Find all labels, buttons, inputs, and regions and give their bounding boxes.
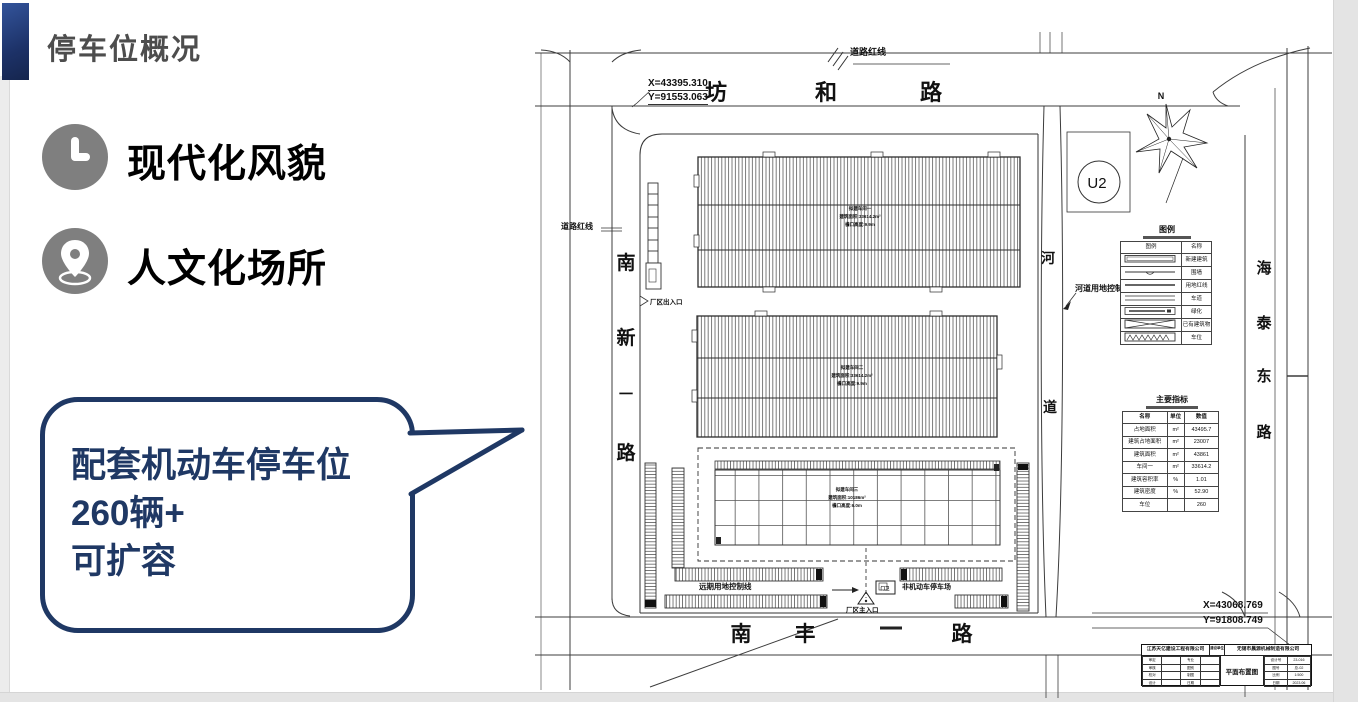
indicator-value: 23007 — [1184, 436, 1218, 449]
building-1-label: 檐口高度:9.9m — [845, 221, 875, 228]
legend-symbol-new-building — [1121, 254, 1182, 267]
coordinate-y: Y=91553.063 — [648, 91, 708, 105]
callout-tail — [396, 420, 536, 506]
road-top-char: 和 — [815, 80, 837, 105]
tb-cell — [1162, 672, 1181, 680]
building-1-label: 拟建车间一 — [849, 205, 872, 212]
building-3-top-strip — [715, 461, 1000, 469]
tb-cell — [1162, 679, 1181, 687]
indicator-unit: m² — [1167, 449, 1184, 462]
indicators-underline — [1146, 406, 1198, 409]
road-right-char: 海 — [1256, 259, 1271, 277]
indicator-unit: % — [1167, 486, 1184, 499]
road-redline-label-top: 道路红线 — [850, 45, 886, 58]
indicator-value: 260 — [1184, 499, 1218, 512]
indicator-value: 52.90 — [1184, 486, 1218, 499]
indicator-name: 车位 — [1123, 499, 1168, 512]
tb-cell: 校对 — [1143, 672, 1162, 680]
drawing-title-block: 江苏天亿建设工程有限公司 建设单位 无锡市晨源机械制造有限公司 审定专业 审核图… — [1141, 644, 1312, 686]
callout-line-3: 可扩容 — [71, 538, 410, 586]
future-control-label: 远期用地控制线 — [699, 581, 752, 592]
tb-cell: 比例 — [1264, 672, 1287, 680]
indicator-header: 名称 — [1123, 411, 1168, 424]
coordinate-y: Y=91808.749 — [1203, 613, 1263, 628]
legend-symbol-redline — [1121, 280, 1182, 293]
design-company: 江苏天亿建设工程有限公司 — [1142, 645, 1210, 655]
legend-symbol-parking — [1121, 332, 1182, 345]
u2-marker — [1067, 132, 1130, 212]
slide: 坊 和 路 南 新 一 路 南 丰 路 海 泰 东 路 河 道 N U2 门卫 … — [0, 0, 1358, 702]
indicator-name: 车间一 — [1123, 461, 1168, 474]
indicators-table: 主要指标 名称 单位 数值 占地面积m²43495.7 建筑占地面积m²2300… — [1122, 394, 1222, 512]
indicator-unit — [1167, 499, 1184, 512]
indicator-value: 43861 — [1184, 449, 1218, 462]
road-right-char: 路 — [1256, 423, 1272, 441]
side-entrance-label: 厂区出入口 — [650, 296, 683, 306]
tb-cell — [1200, 657, 1219, 665]
legend: 图例 图例 名称 新建建筑 围墙 用地红线 车道 绿化 已有建筑物 车位 — [1120, 224, 1214, 345]
coordinate-label-bottom: X=43068.769 Y=91808.749 — [1203, 598, 1263, 628]
indicator-unit: % — [1167, 474, 1184, 487]
road-bottom-char: 南 — [731, 622, 752, 646]
building-2-label: 拟建车间二 — [841, 364, 864, 371]
callout-line-1: 配套机动车停车位 — [71, 442, 410, 490]
road-left-char: 南 — [616, 252, 635, 274]
tb-cell: 总-02 — [1287, 664, 1310, 672]
road-left-char: 路 — [616, 441, 636, 464]
building-2-label: 檐口高度:9.9m — [837, 380, 867, 387]
indicator-header: 数值 — [1184, 411, 1218, 424]
legend-row-label: 围墙 — [1182, 267, 1212, 280]
river-char: 道 — [1043, 399, 1057, 415]
legend-row-label: 车位 — [1182, 332, 1212, 345]
building-2-label: 建筑面积:33614.2m² — [830, 372, 873, 379]
legend-row-label: 绿化 — [1182, 306, 1212, 319]
drawing-title: 平面布置图 — [1220, 656, 1264, 686]
north-label: N — [1158, 91, 1165, 101]
tb-cell: 制图 — [1181, 672, 1200, 680]
tb-cell: 日期 — [1181, 679, 1200, 687]
tb-cell: 设计号 — [1264, 657, 1287, 665]
indicator-name: 建筑密度 — [1123, 486, 1168, 499]
road-bottom-char: 路 — [952, 622, 974, 646]
tb-cell: 专业 — [1181, 657, 1200, 665]
road-right-char: 泰 — [1255, 314, 1272, 332]
indicator-unit: m² — [1167, 424, 1184, 437]
indicator-unit: m² — [1167, 461, 1184, 474]
title-block-signatures: 审定专业 审核图别 校对制图 设计日期 — [1142, 656, 1220, 687]
side-entrance-marker — [640, 296, 648, 306]
building-3-label: 拟建车间三 — [836, 486, 859, 493]
legend-row-label: 新建建筑 — [1182, 254, 1212, 267]
indicator-value: 33614.2 — [1184, 461, 1218, 474]
road-top-char: 路 — [920, 80, 943, 105]
legend-row-label: 车道 — [1182, 293, 1212, 306]
callout-bubble: 配套机动车停车位 260辆+ 可扩容 — [40, 397, 415, 633]
callout-line-2: 260辆+ — [71, 490, 410, 538]
legend-symbol-greenery — [1121, 306, 1182, 319]
main-entrance-label: 厂区主入口 — [846, 604, 879, 614]
tb-cell: 设计 — [1143, 679, 1162, 687]
legend-header-symbol: 图例 — [1121, 241, 1182, 254]
road-redline-label-left: 道路红线 — [561, 221, 593, 232]
owner-cell-label: 建设单位 — [1210, 645, 1225, 655]
indicators-title: 主要指标 — [1122, 394, 1222, 405]
legend-header-name: 名称 — [1182, 241, 1212, 254]
north-compass-icon — [1136, 104, 1207, 203]
road-left-char: 一 — [619, 386, 633, 402]
legend-underline — [1143, 236, 1191, 239]
legend-symbol-fence — [1121, 267, 1182, 280]
tb-cell — [1200, 664, 1219, 672]
road-top-char: 坊 — [705, 80, 727, 105]
u2-label: U2 — [1087, 175, 1106, 192]
indicator-header: 单位 — [1167, 411, 1184, 424]
legend-row-label: 已有建筑物 — [1182, 319, 1212, 332]
owner-company: 无锡市晨源机械制造有限公司 — [1225, 645, 1311, 655]
guard-label: 门卫 — [881, 585, 890, 592]
indicator-name: 建筑占地面积 — [1123, 436, 1168, 449]
indicator-name: 建筑容积率 — [1123, 474, 1168, 487]
coordinate-x: X=43068.769 — [1203, 598, 1263, 613]
tb-cell — [1162, 664, 1181, 672]
tb-cell: 图号 — [1264, 664, 1287, 672]
tb-cell: 23-016 — [1287, 657, 1310, 665]
main-entrance — [832, 548, 895, 604]
road-right-char: 东 — [1256, 367, 1271, 385]
bike-parking-label: 非机动车停车场 — [902, 582, 951, 592]
tb-cell: 1:500 — [1287, 672, 1310, 680]
legend-symbol-existing-building — [1121, 319, 1182, 332]
indicator-name: 占地面积 — [1123, 424, 1168, 437]
tb-cell — [1200, 672, 1219, 680]
indicator-unit: m² — [1167, 436, 1184, 449]
building-1-label: 建筑面积:33614.2m² — [838, 213, 881, 220]
building-3-label: 建筑面积:10186m² — [827, 494, 866, 501]
legend-row-label: 用地红线 — [1182, 280, 1212, 293]
indicator-name: 建筑面积 — [1123, 449, 1168, 462]
building-3-label: 檐口高度:6.0m — [832, 502, 862, 509]
tb-cell: 图别 — [1181, 664, 1200, 672]
tb-cell: 审定 — [1143, 657, 1162, 665]
title-block-meta: 设计号23-016 图号总-02 比例1:500 日期2023.06 — [1264, 656, 1311, 687]
tb-cell: 2023.06 — [1287, 679, 1310, 687]
tb-cell: 日期 — [1264, 679, 1287, 687]
coordinate-x: X=43395.310 — [648, 77, 708, 91]
dock-strip — [640, 183, 661, 306]
indicator-value: 43495.7 — [1184, 424, 1218, 437]
tb-cell — [1162, 657, 1181, 665]
road-bottom-char: 丰 — [795, 622, 816, 646]
indicator-value: 1.01 — [1184, 474, 1218, 487]
legend-title: 图例 — [1120, 224, 1214, 235]
road-left-char: 新 — [616, 326, 635, 349]
tb-cell — [1200, 679, 1219, 687]
river-char: 河 — [1041, 250, 1055, 266]
legend-symbol-driveway — [1121, 293, 1182, 306]
coordinate-label-top: X=43395.310 Y=91553.063 — [648, 77, 708, 105]
tb-cell: 审核 — [1143, 664, 1162, 672]
